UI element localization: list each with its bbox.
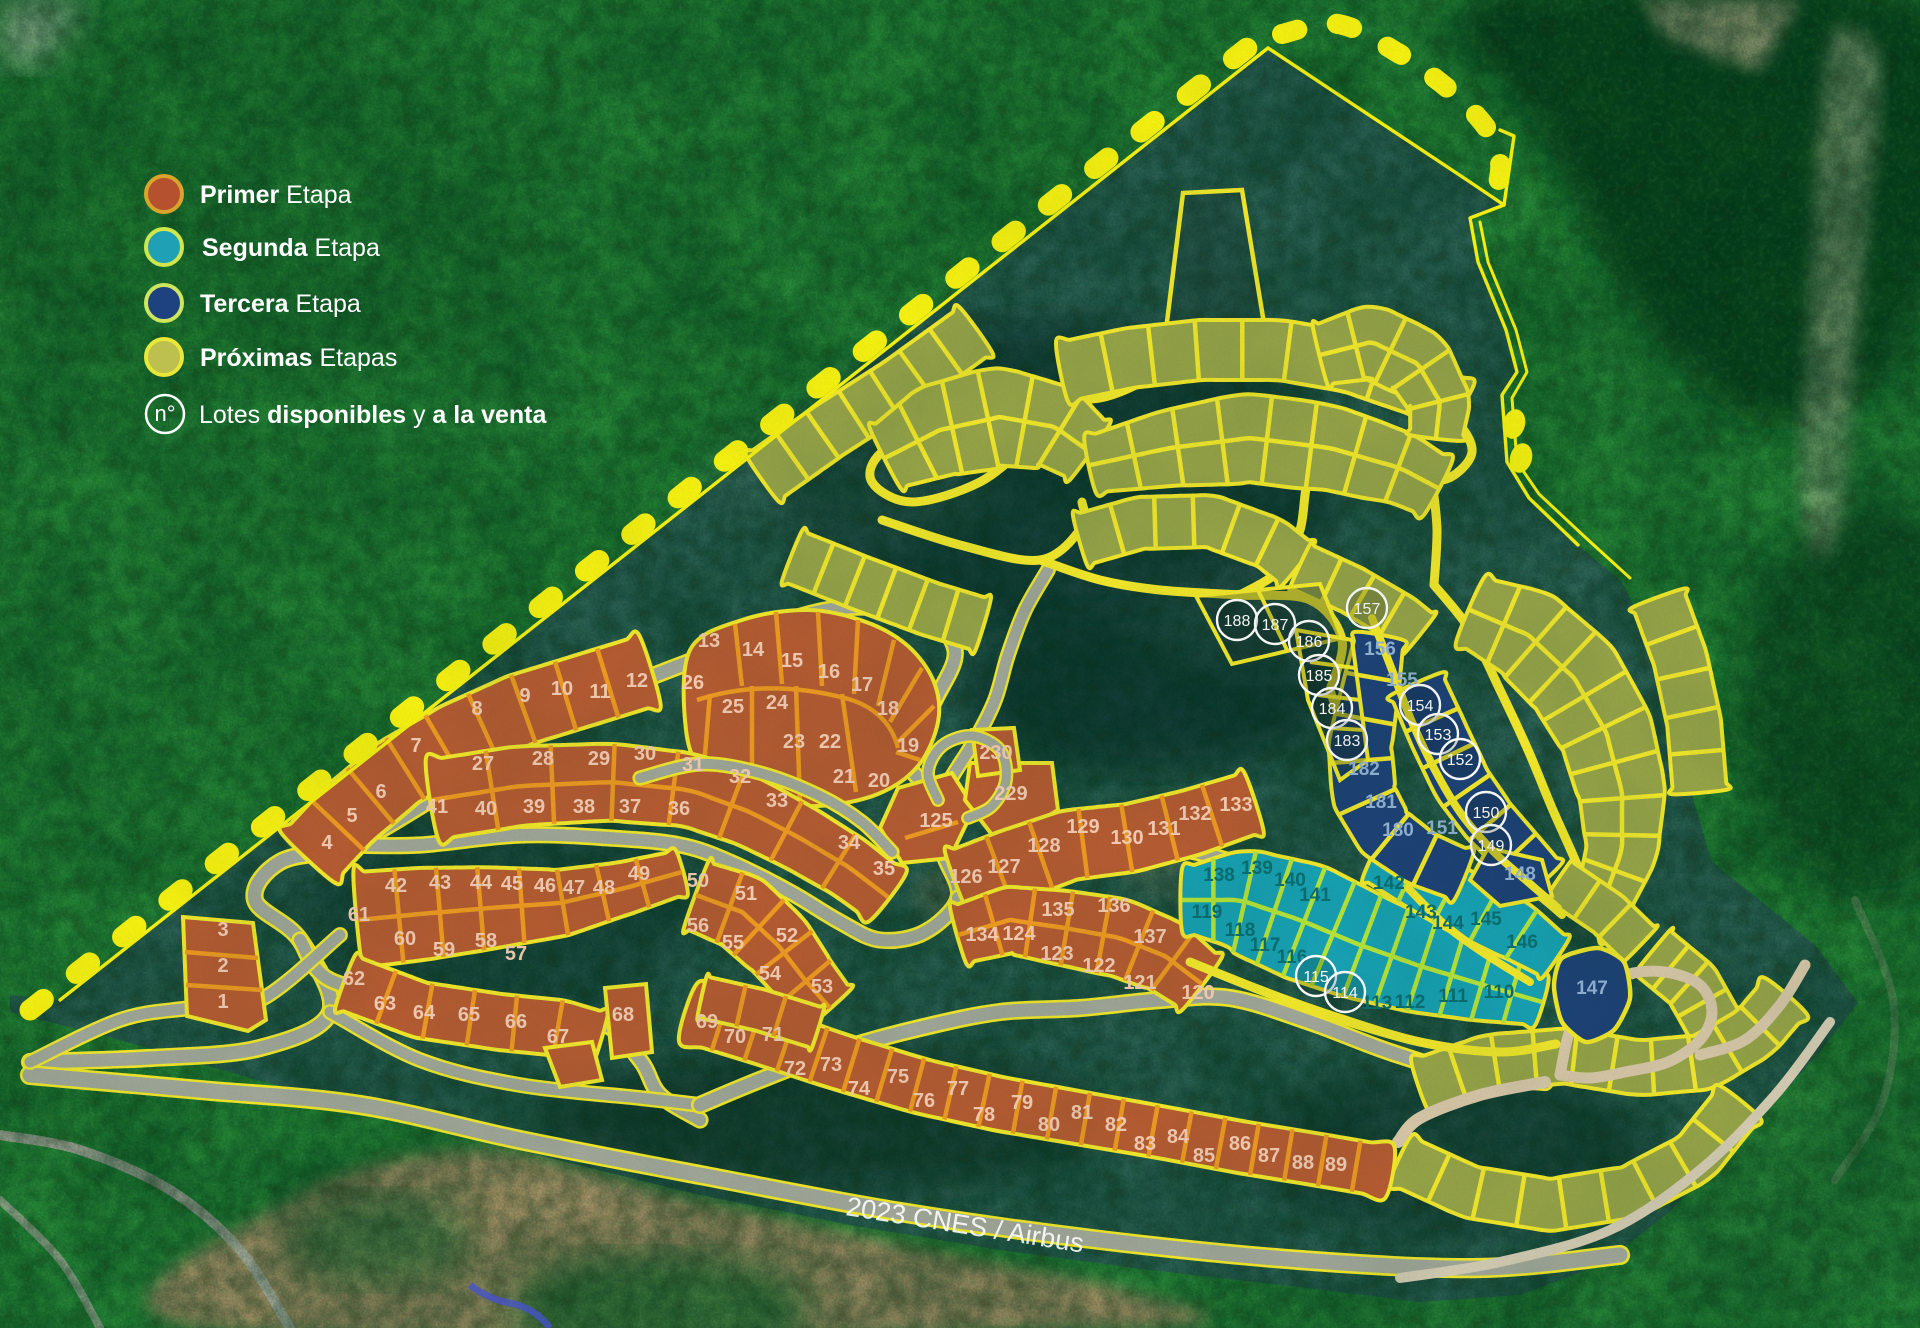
svg-text:Primer Etapa: Primer Etapa — [200, 181, 352, 209]
svg-text:Próximas Etapas: Próximas Etapas — [200, 344, 397, 372]
svg-text:Segunda Etapa: Segunda Etapa — [202, 234, 380, 262]
svg-text:n°: n° — [154, 401, 175, 426]
svg-text:Tercera Etapa: Tercera Etapa — [200, 290, 361, 318]
svg-text:Lotes disponibles y a la venta: Lotes disponibles y a la venta — [199, 401, 547, 429]
